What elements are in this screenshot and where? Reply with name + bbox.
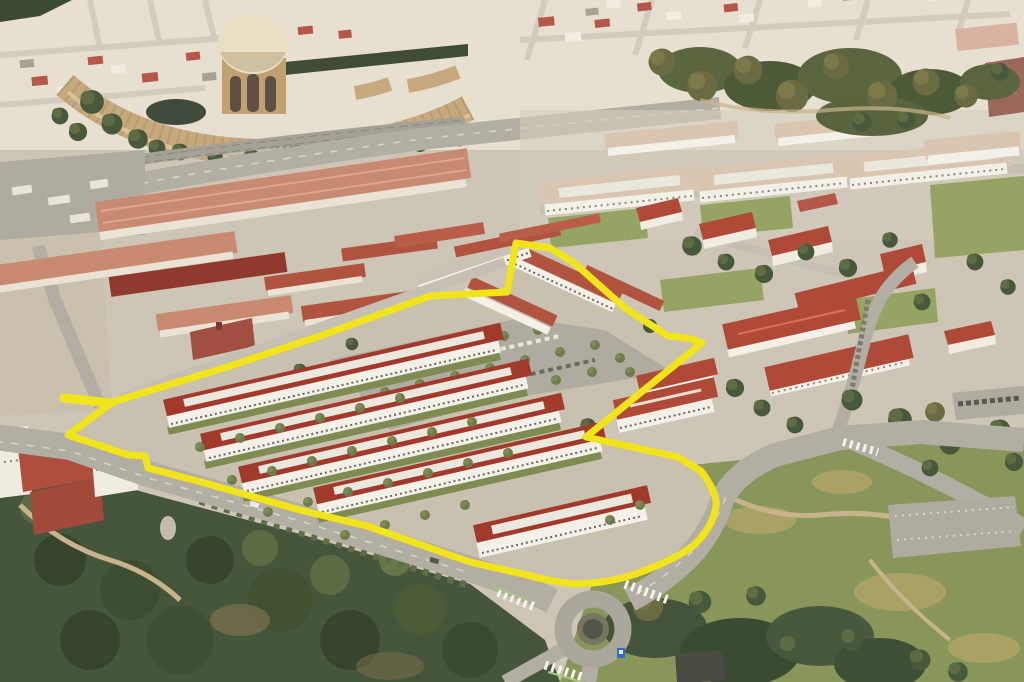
site-boundary-stub bbox=[64, 398, 110, 403]
bus-stop-sign bbox=[617, 648, 625, 658]
colonnade-east-1 bbox=[355, 84, 390, 93]
rotunda bbox=[218, 14, 288, 114]
flat-roof-structure bbox=[675, 650, 725, 682]
aerial-scene-canvas bbox=[0, 0, 1024, 682]
lagoon bbox=[146, 99, 206, 125]
aerial-rendering bbox=[0, 0, 1024, 682]
